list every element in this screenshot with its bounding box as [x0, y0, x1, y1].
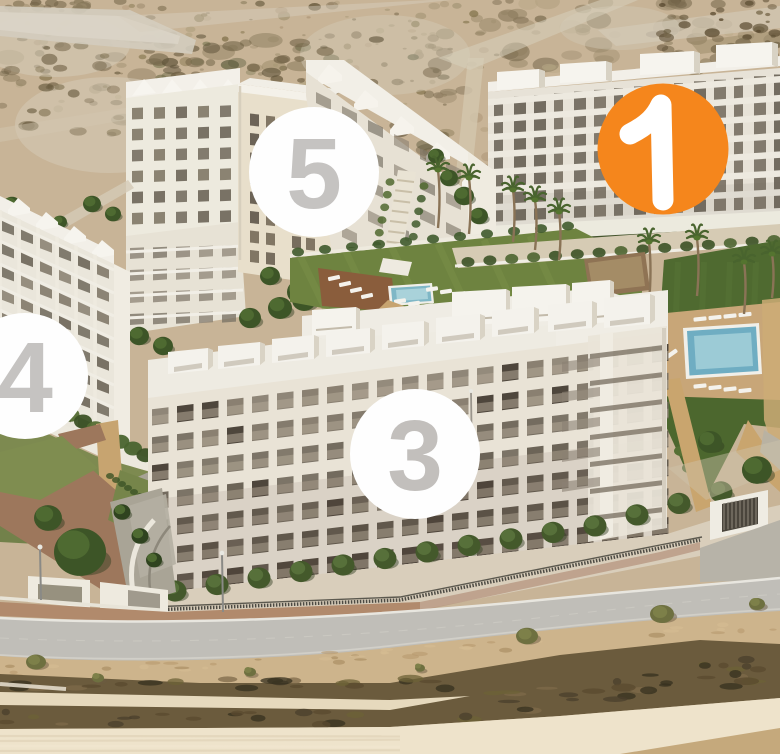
svg-text:3: 3 [387, 400, 443, 512]
svg-text:4: 4 [0, 322, 53, 434]
svg-text:5: 5 [286, 118, 342, 230]
